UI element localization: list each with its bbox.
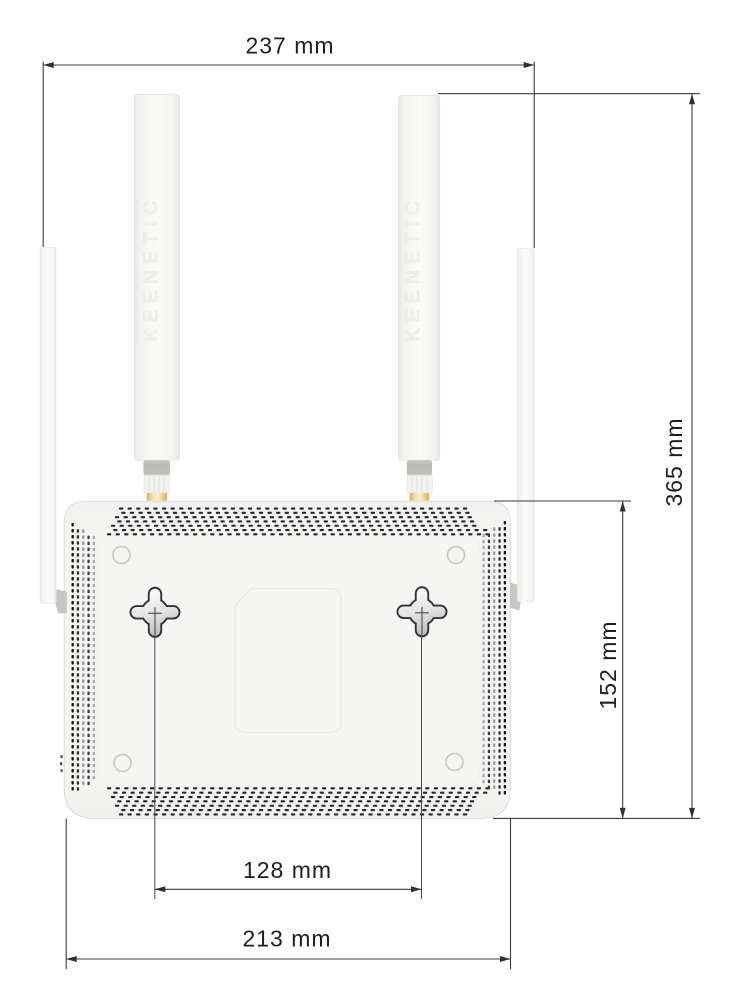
svg-text:KEENETIC: KEENETIC [403,194,424,341]
svg-text:152 mm: 152 mm [595,620,621,709]
svg-text:237 mm: 237 mm [245,33,334,59]
svg-text:128 mm: 128 mm [243,857,332,883]
svg-text:213 mm: 213 mm [242,926,331,952]
svg-text:KEENETIC: KEENETIC [141,194,162,341]
svg-text:365 mm: 365 mm [661,417,687,506]
